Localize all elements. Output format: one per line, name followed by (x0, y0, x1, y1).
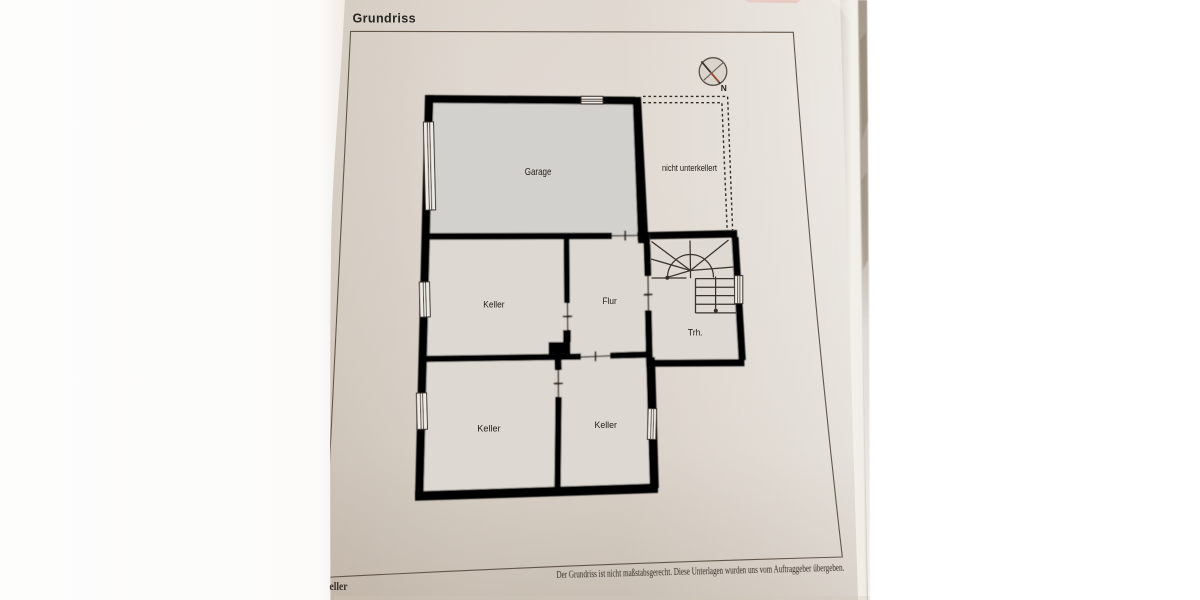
svg-text:Keller: Keller (595, 420, 618, 431)
svg-text:eller: eller (330, 581, 348, 593)
svg-text:Trh.: Trh. (688, 328, 703, 339)
svg-text:Flur: Flur (603, 296, 618, 307)
svg-text:N: N (721, 83, 727, 93)
svg-text:nicht unterkellert: nicht unterkellert (662, 163, 717, 173)
svg-text:Keller: Keller (483, 300, 505, 311)
svg-text:Garage: Garage (525, 167, 552, 178)
svg-text:Grundriss: Grundriss (353, 12, 417, 26)
svg-text:Keller: Keller (477, 423, 501, 434)
